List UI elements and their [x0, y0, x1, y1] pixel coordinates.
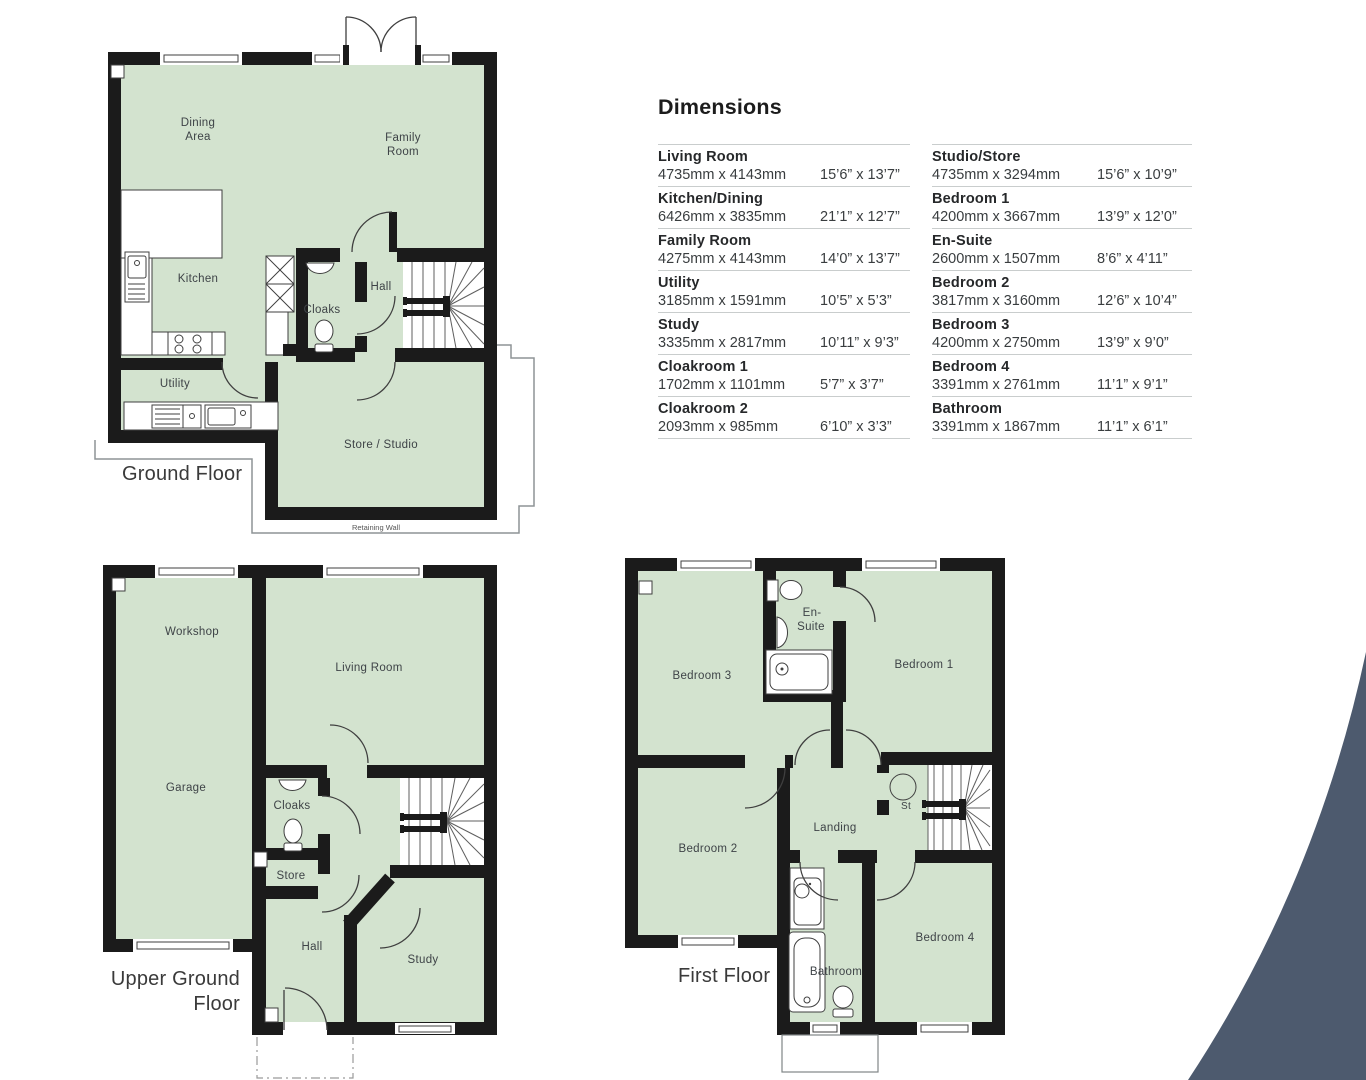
dimension-row: Utility 3185mm x 1591mm10’5” x 5’3”: [658, 270, 910, 312]
ground-floor-plan: Dining Area Family Room Kitchen Cloaks H…: [95, 17, 534, 533]
room-label-garage: Garage: [166, 782, 206, 794]
floor-label-upper-ground2: Floor: [193, 993, 240, 1015]
dimension-row: Bedroom 4 3391mm x 2761mm11’1” x 9’1”: [932, 354, 1192, 396]
dimension-row: En-Suite 2600mm x 1507mm8’6” x 4’11”: [932, 228, 1192, 270]
room-label-cloaks: Cloaks: [304, 304, 341, 316]
dimension-row: Bedroom 2 3817mm x 3160mm12’6” x 10’4”: [932, 270, 1192, 312]
dimensions-title: Dimensions: [658, 95, 782, 120]
dimension-row: Living Room 4735mm x 4143mm15’6” x 13’7”: [658, 144, 910, 186]
lower-roof-outline: [782, 1035, 878, 1072]
washer: [152, 405, 183, 428]
room-label-living: Living Room: [335, 662, 402, 674]
room-label-family2: Room: [387, 146, 419, 158]
dimension-row: Cloakroom 1 1702mm x 1101mm5’7” x 3’7”: [658, 354, 910, 396]
room-label-study: Study: [408, 954, 439, 966]
toilet: [833, 986, 853, 1008]
floor-label-ground: Ground Floor: [122, 463, 242, 485]
room-label-hall: Hall: [301, 941, 322, 953]
utility-fixtures: [124, 402, 278, 430]
room-label-kitchen: Kitchen: [178, 273, 218, 285]
wall-notch: [111, 65, 124, 78]
floor-label-first: First Floor: [678, 965, 770, 987]
dimension-row: Bedroom 3 4200mm x 2750mm13’9” x 9’0”: [932, 312, 1192, 354]
hob: [168, 332, 212, 355]
upper-ground-floor-plan: Workshop Living Room Garage Cloaks Store…: [103, 565, 497, 1078]
room-label-ensuite: En-: [803, 607, 822, 619]
toilet: [315, 320, 333, 342]
first-floor-plan: Bedroom 3 En- Suite Bedroom 1 Bedroom 2 …: [625, 558, 1005, 1072]
room-label-hall: Hall: [370, 281, 391, 293]
room-label-bedroom3: Bedroom 3: [673, 670, 732, 682]
room-label-bathroom: Bathroom: [810, 966, 862, 978]
room-label-landing: Landing: [813, 822, 856, 834]
accent-wedge: [1188, 652, 1366, 1080]
garage-door: [133, 939, 233, 952]
dimension-row: Studio/Store 4735mm x 3294mm15’6” x 10’9…: [932, 144, 1192, 186]
dimension-row: Cloakroom 2 2093mm x 985mm6’10” x 3’3”: [658, 396, 910, 438]
shower: [766, 650, 832, 694]
room-label-dining: Dining: [181, 117, 215, 129]
room-label-family: Family: [385, 132, 421, 144]
room-label-bedroom1: Bedroom 1: [895, 659, 954, 671]
dimension-row: Kitchen/Dining 6426mm x 3835mm21’1” x 12…: [658, 186, 910, 228]
dimension-row: Bedroom 1 4200mm x 3667mm13’9” x 12’0”: [932, 186, 1192, 228]
room-label-utility: Utility: [160, 378, 190, 390]
retaining-wall-label: Retaining Wall: [352, 523, 400, 532]
room-label-bedroom4: Bedroom 4: [916, 932, 975, 944]
room-label-bedroom2: Bedroom 2: [679, 843, 738, 855]
dimension-row: Study 3335mm x 2817mm10’11” x 9’3”: [658, 312, 910, 354]
dimensions-table-left: Living Room 4735mm x 4143mm15’6” x 13’7”…: [658, 144, 910, 439]
room-label-dining2: Area: [185, 131, 211, 143]
dimension-row: Family Room 4275mm x 4143mm14’0” x 13’7”: [658, 228, 910, 270]
room-label-workshop: Workshop: [165, 626, 219, 638]
room-label-store-studio: Store / Studio: [344, 439, 418, 451]
room-label-cloaks: Cloaks: [274, 800, 311, 812]
floorplan-page: Dining Area Family Room Kitchen Cloaks H…: [0, 0, 1366, 1080]
floor-label-upper-ground: Upper Ground: [111, 968, 240, 990]
french-doors: [340, 17, 421, 65]
room-label-ensuite2: Suite: [797, 621, 825, 633]
room-label-store: Store: [277, 870, 306, 882]
room-label-st: St: [901, 801, 911, 812]
porch-outline: [257, 1037, 353, 1078]
dimensions-table-right: Studio/Store 4735mm x 3294mm15’6” x 10’9…: [932, 144, 1192, 439]
dimension-row: Bathroom 3391mm x 1867mm11’1” x 6’1”: [932, 396, 1192, 438]
